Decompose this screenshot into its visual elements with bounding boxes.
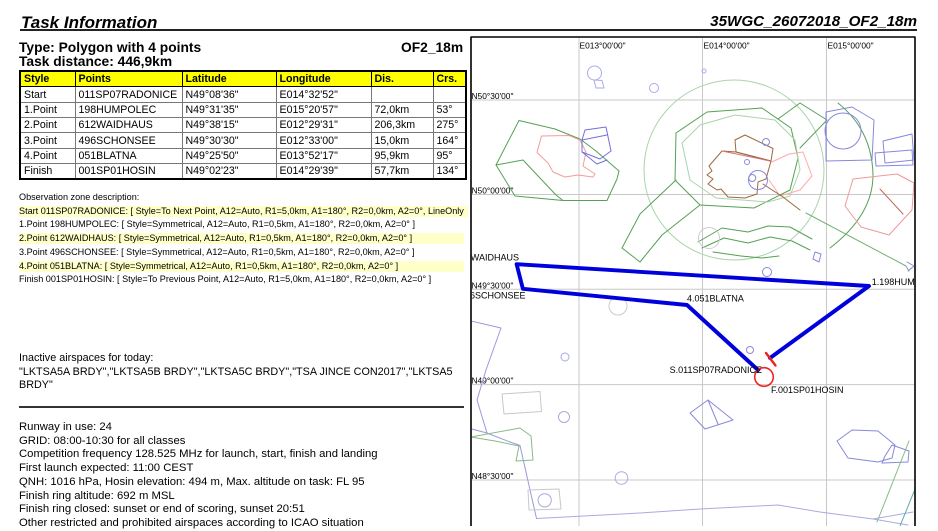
svg-text:S.011SP07RADONICE: S.011SP07RADONICE	[670, 365, 762, 375]
svg-text:WAIDHAUS: WAIDHAUS	[471, 253, 519, 263]
svg-text:1.198HUMPOLEC: 1.198HUMPOLEC	[872, 277, 938, 287]
svg-text:N49°00'00": N49°00'00"	[472, 376, 514, 386]
svg-text:E015°00'00": E015°00'00"	[828, 40, 874, 50]
svg-text:E014°00'00": E014°00'00"	[704, 40, 750, 50]
svg-text:N50°00'00": N50°00'00"	[472, 186, 514, 196]
svg-text:F.001SP01HOSIN: F.001SP01HOSIN	[771, 385, 844, 395]
svg-text:4.051BLATNA: 4.051BLATNA	[687, 294, 744, 304]
svg-text:E013°00'00": E013°00'00"	[580, 40, 626, 50]
svg-text:6SCHONSEE: 6SCHONSEE	[470, 290, 526, 300]
svg-text:N50°30'00": N50°30'00"	[472, 91, 514, 101]
svg-text:N49°30'00": N49°30'00"	[472, 280, 514, 290]
svg-text:N48°30'00": N48°30'00"	[472, 471, 514, 481]
